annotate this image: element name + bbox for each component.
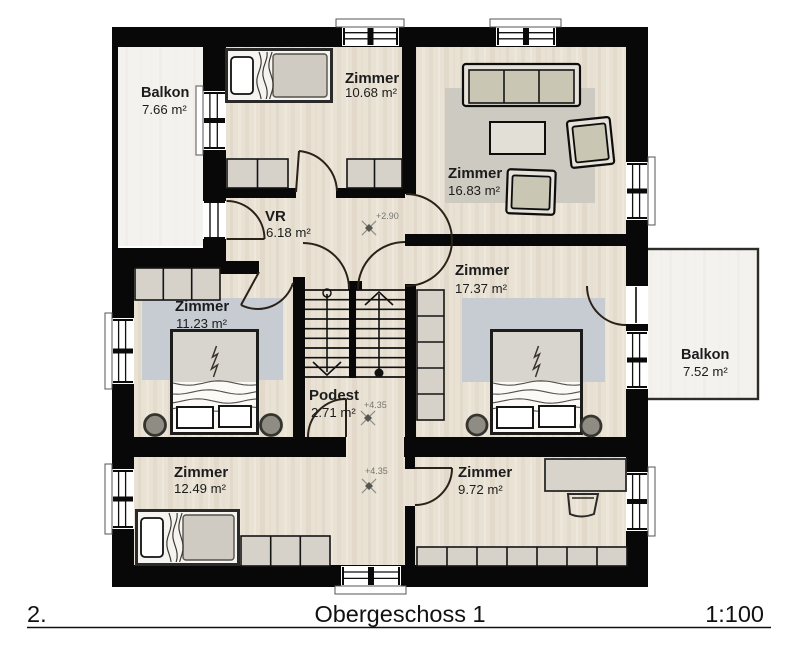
svg-text:9.72 m²: 9.72 m² bbox=[458, 482, 503, 497]
svg-text:+2.90: +2.90 bbox=[376, 211, 399, 221]
svg-text:Balkon: Balkon bbox=[141, 85, 189, 101]
svg-text:7.52 m²: 7.52 m² bbox=[683, 364, 728, 379]
svg-text:17.37 m²: 17.37 m² bbox=[455, 281, 508, 296]
svg-text:+4.35: +4.35 bbox=[364, 400, 387, 410]
svg-text:12.49 m²: 12.49 m² bbox=[174, 481, 227, 496]
svg-text:Zimmer: Zimmer bbox=[458, 464, 512, 481]
svg-text:Podest: Podest bbox=[309, 387, 359, 404]
svg-text:Zimmer: Zimmer bbox=[448, 165, 502, 182]
svg-text:2.: 2. bbox=[27, 601, 47, 627]
svg-text:11.23 m²: 11.23 m² bbox=[176, 316, 228, 331]
svg-text:Zimmer: Zimmer bbox=[174, 464, 228, 481]
svg-text:Zimmer: Zimmer bbox=[175, 298, 229, 315]
svg-text:1:100: 1:100 bbox=[705, 601, 764, 627]
svg-text:Zimmer: Zimmer bbox=[455, 262, 509, 279]
svg-text:Obergeschoss 1: Obergeschoss 1 bbox=[314, 601, 485, 627]
svg-text:16.83 m²: 16.83 m² bbox=[448, 183, 501, 198]
svg-text:Balkon: Balkon bbox=[681, 347, 729, 363]
svg-text:6.18 m²: 6.18 m² bbox=[266, 225, 311, 240]
svg-text:VR: VR bbox=[265, 208, 286, 225]
svg-text:+4.35: +4.35 bbox=[365, 466, 388, 476]
svg-text:10.68 m²: 10.68 m² bbox=[345, 85, 398, 100]
svg-text:2.71 m²: 2.71 m² bbox=[311, 405, 356, 420]
svg-text:7.66 m²: 7.66 m² bbox=[142, 102, 187, 117]
